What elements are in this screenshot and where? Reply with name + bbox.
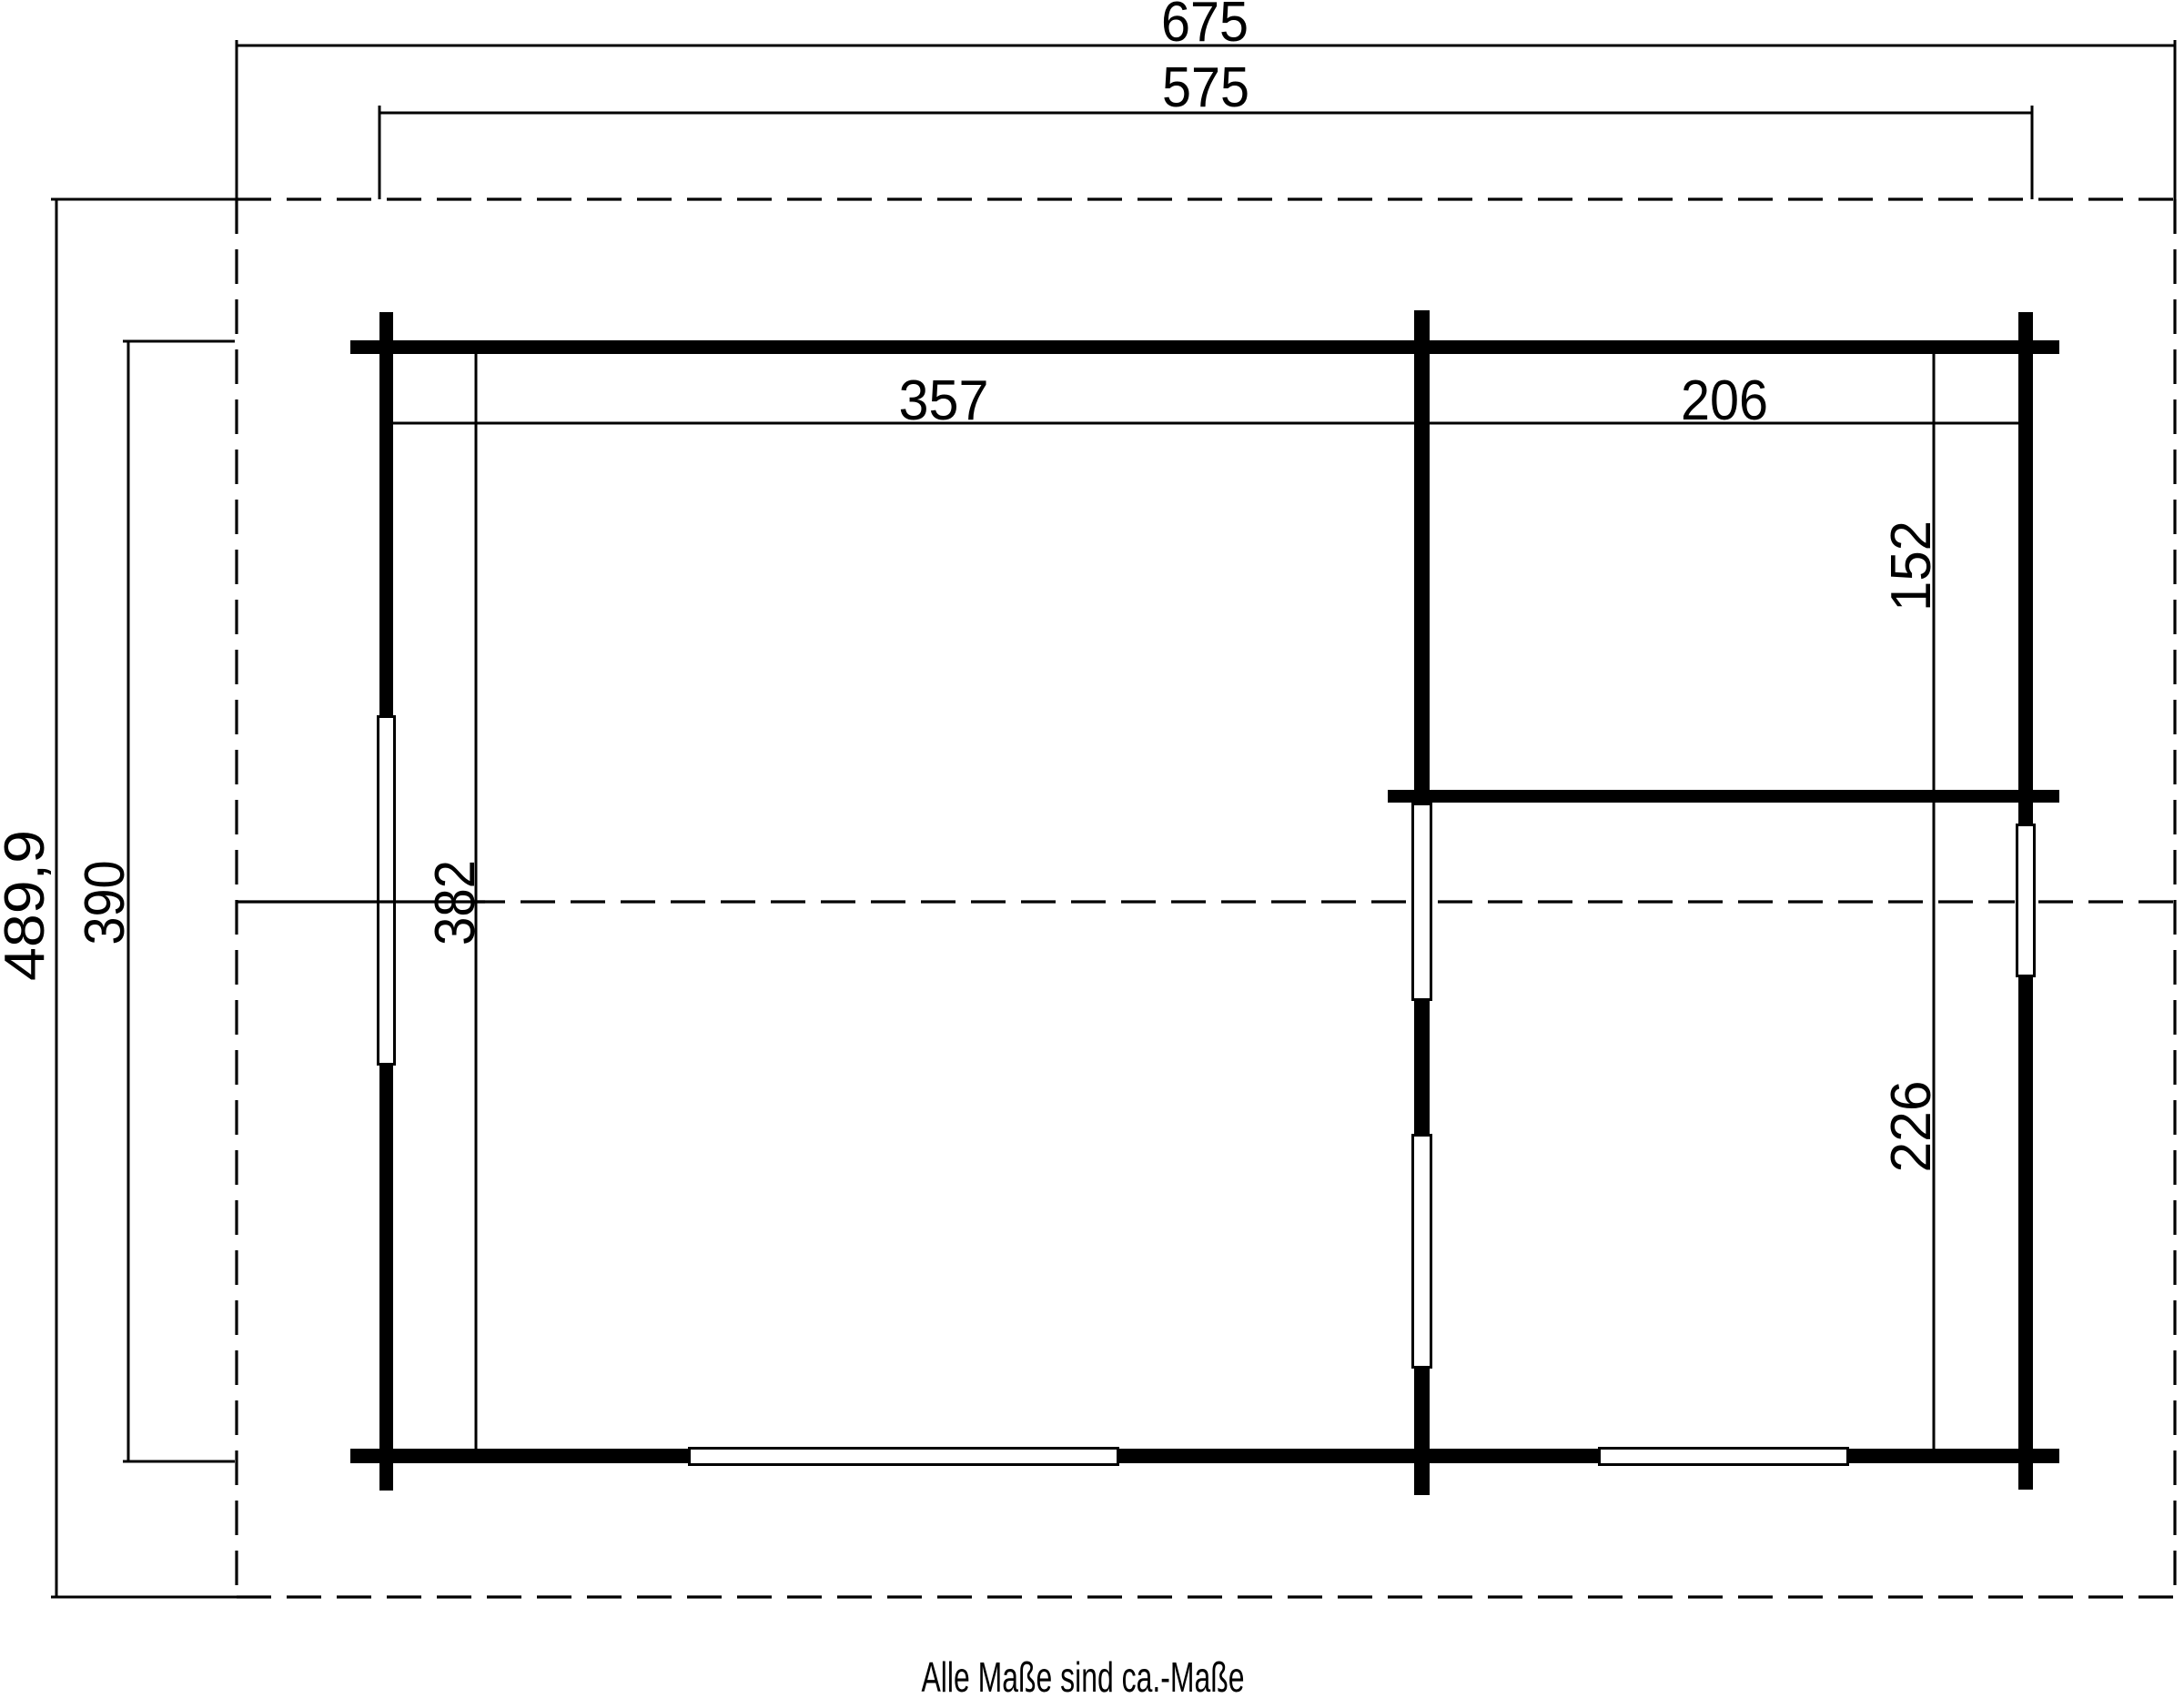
- svg-text:226: 226: [1880, 1081, 1943, 1173]
- svg-text:Alle Maße sind ca.-Maße: Alle Maße sind ca.-Maße: [922, 1653, 1245, 1698]
- svg-text:675: 675: [1161, 0, 1249, 54]
- svg-text:489,9: 489,9: [0, 830, 56, 981]
- svg-text:206: 206: [1681, 369, 1768, 432]
- svg-text:152: 152: [1880, 521, 1943, 611]
- svg-text:575: 575: [1162, 56, 1249, 119]
- svg-text:390: 390: [74, 861, 136, 945]
- svg-text:357: 357: [899, 369, 989, 432]
